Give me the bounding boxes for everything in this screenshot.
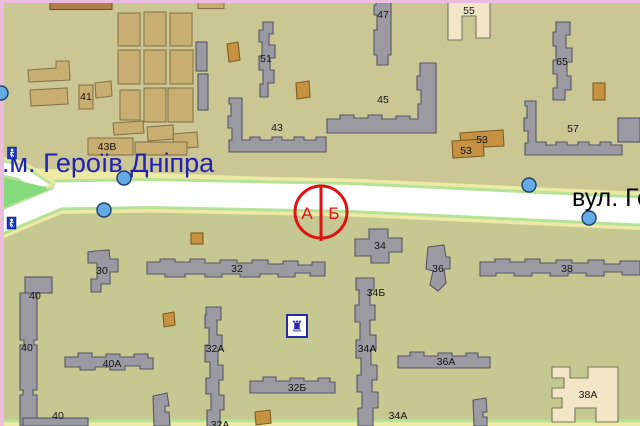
building-label: 32Б — [288, 382, 307, 394]
building-label: 45 — [377, 94, 389, 106]
landmark-icon: ♜ — [287, 315, 307, 337]
building-label: 34Б — [367, 287, 386, 299]
building-label: 53 — [460, 145, 472, 157]
building — [170, 13, 192, 46]
building — [198, 74, 208, 110]
building-label: 40 — [52, 410, 64, 422]
billboard-side-a: А — [301, 204, 313, 223]
metro-entrance-dot — [522, 178, 536, 192]
building — [144, 12, 166, 46]
bottom-road — [0, 420, 640, 426]
street-name-label: вул. Ге — [572, 184, 640, 212]
building — [168, 88, 193, 122]
building — [113, 121, 144, 135]
building-label: 32 — [231, 263, 243, 275]
building-label: 57 — [567, 123, 579, 135]
building-label: 38А — [579, 389, 598, 401]
pedestrian-icon-head — [10, 219, 13, 222]
metro-entrance-dot — [0, 86, 8, 100]
pedestrian-underpass-icon — [7, 217, 16, 229]
building-label: 34А — [389, 410, 408, 422]
building-label: 47 — [377, 9, 389, 21]
map-border-left — [0, 0, 4, 426]
building — [196, 42, 207, 71]
building-label: 36А — [437, 356, 456, 368]
map-border-top — [0, 0, 640, 3]
building-label: 41 — [80, 91, 92, 103]
building — [473, 398, 487, 426]
map-background-lower — [0, 210, 640, 426]
building-label: 38 — [561, 263, 573, 275]
map-canvas[interactable]: 41 43В 47 51 43 45 55 65 53 53 57 34 32 … — [0, 0, 640, 426]
building-label: 36 — [432, 263, 444, 275]
building — [255, 410, 271, 425]
bottom-road-fill — [0, 422, 640, 426]
building-label: 65 — [556, 56, 568, 68]
building — [120, 90, 140, 120]
landmark-icon-glyph: ♜ — [290, 318, 303, 336]
building — [170, 50, 193, 84]
building — [618, 118, 640, 142]
building — [147, 125, 174, 141]
building — [95, 81, 112, 98]
metro-entrance-dot — [582, 211, 596, 225]
building — [118, 13, 140, 46]
building — [144, 88, 166, 122]
billboard-side-b: Б — [328, 204, 339, 223]
building-label: 40 — [29, 290, 41, 302]
building-label: 51 — [260, 53, 272, 65]
building-label: 53 — [476, 134, 488, 146]
building — [191, 233, 203, 244]
building — [227, 42, 240, 62]
building-label: 34 — [374, 240, 386, 252]
building-label: 34А — [358, 343, 377, 355]
building-label: 32А — [211, 419, 230, 426]
map-render: 41 43В 47 51 43 45 55 65 53 53 57 34 32 … — [0, 0, 640, 426]
building-label: 30 — [96, 265, 108, 277]
building-label: 40 — [21, 342, 33, 354]
metro-entrance-dot — [97, 203, 111, 217]
metro-station-label: .м. Героїв Дніпра — [2, 148, 215, 178]
building-label: 55 — [463, 5, 475, 17]
building — [30, 88, 68, 106]
building — [144, 50, 166, 84]
building — [296, 81, 310, 99]
bottom-road-edge — [0, 420, 640, 423]
building-40-stem — [20, 293, 37, 426]
billboard-marker[interactable]: А Б — [295, 185, 347, 241]
building-label: 43 — [271, 122, 283, 134]
building — [593, 83, 605, 100]
building-label: 40А — [103, 358, 122, 370]
building-label: 32А — [206, 343, 225, 355]
building — [118, 50, 140, 84]
building — [163, 312, 175, 327]
